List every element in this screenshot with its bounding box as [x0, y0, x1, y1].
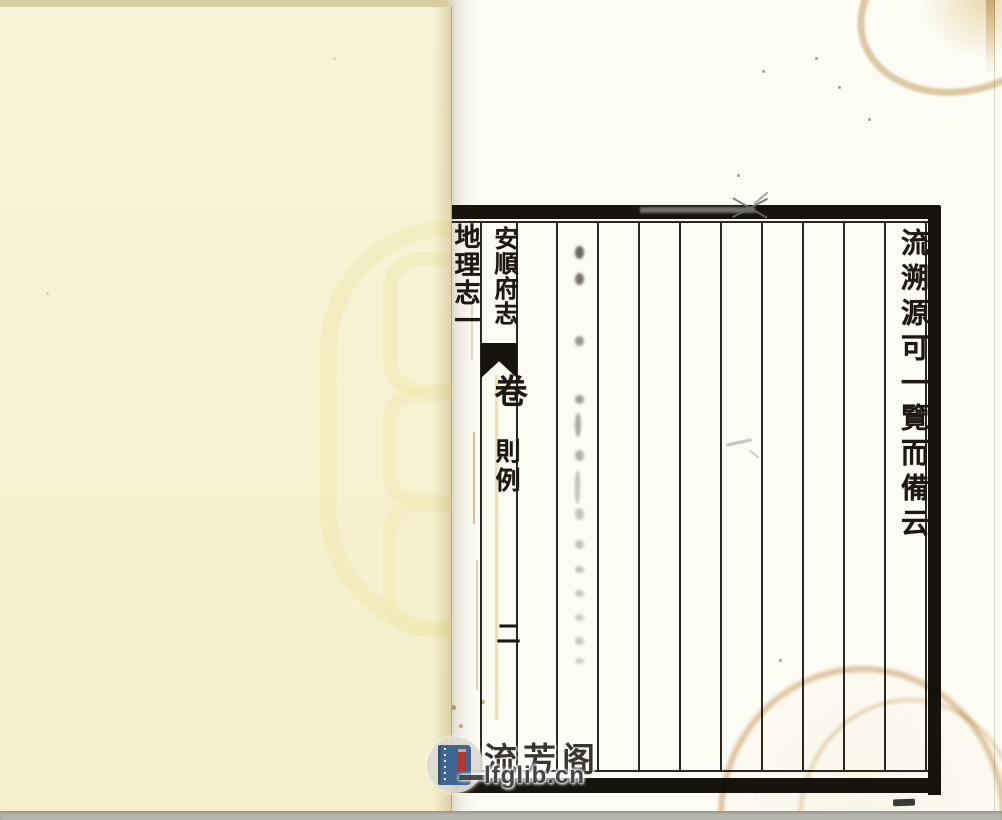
column-rule	[720, 222, 722, 771]
paper-speck	[815, 57, 818, 60]
grid-top-rule	[452, 221, 928, 223]
spine-section-label: 則例	[487, 438, 523, 496]
paper-speck	[779, 659, 782, 662]
paper-speck	[762, 70, 765, 73]
column-rule	[638, 222, 640, 771]
spine-page-number: 二	[488, 621, 523, 645]
paper-speck	[737, 174, 740, 177]
paper-edge-line	[994, 0, 995, 811]
paper-speck	[46, 292, 49, 295]
ink-bleed-mark	[575, 590, 584, 597]
ink-bleed-mark	[575, 395, 584, 404]
ink-bleed-mark	[575, 637, 584, 645]
ink-bleed-mark	[575, 566, 584, 573]
ink-bleed-mark	[575, 450, 584, 461]
blank-facing-page	[0, 6, 452, 811]
publisher-logo-watermark	[383, 498, 452, 636]
book-scan-page: 地理志一 安順府志 卷 則例 二 流溯源可一覽而備云	[0, 0, 1002, 820]
column-rule	[597, 222, 599, 771]
site-watermark-url: lfglib.cn	[484, 762, 585, 790]
site-watermark-dash	[459, 775, 486, 780]
column-rule	[843, 222, 845, 771]
column-rule	[679, 222, 681, 771]
book-stitch-icon	[444, 748, 446, 782]
margin-chapter-title: 地理志一	[447, 223, 484, 335]
ink-bleed-mark	[575, 273, 584, 285]
scan-bottom-edge	[0, 811, 1002, 820]
column-rule	[556, 222, 558, 771]
ink-bleed-mark	[575, 614, 584, 621]
column-rule	[884, 222, 886, 771]
paper-speck	[868, 118, 871, 121]
ink-bleed-mark	[575, 246, 584, 259]
spine-volume-char: 卷	[483, 374, 531, 407]
body-text-column: 流溯源可一覽而備云	[892, 228, 932, 543]
publisher-logo-watermark	[383, 388, 452, 508]
paper-speck	[838, 86, 841, 89]
ink-bleed-mark	[575, 413, 581, 437]
ink-bleed-mark	[575, 508, 584, 520]
bottom-corner-ink-mark	[893, 799, 915, 807]
lfg-logo-badge	[427, 737, 483, 793]
ink-bleed-mark	[575, 470, 580, 504]
page-top-edge	[0, 0, 448, 7]
ink-bleed-mark	[575, 540, 584, 549]
ink-bleed-mark	[575, 658, 584, 664]
paper-speck	[333, 57, 336, 60]
spine-book-title: 安順府志	[486, 226, 521, 326]
publisher-logo-watermark	[383, 252, 452, 398]
ink-bleed-mark	[575, 336, 584, 346]
column-rule	[802, 222, 804, 771]
book-seal-label-icon	[458, 749, 466, 772]
binding-fold-shadow	[448, 0, 476, 811]
column-rule	[761, 222, 763, 771]
